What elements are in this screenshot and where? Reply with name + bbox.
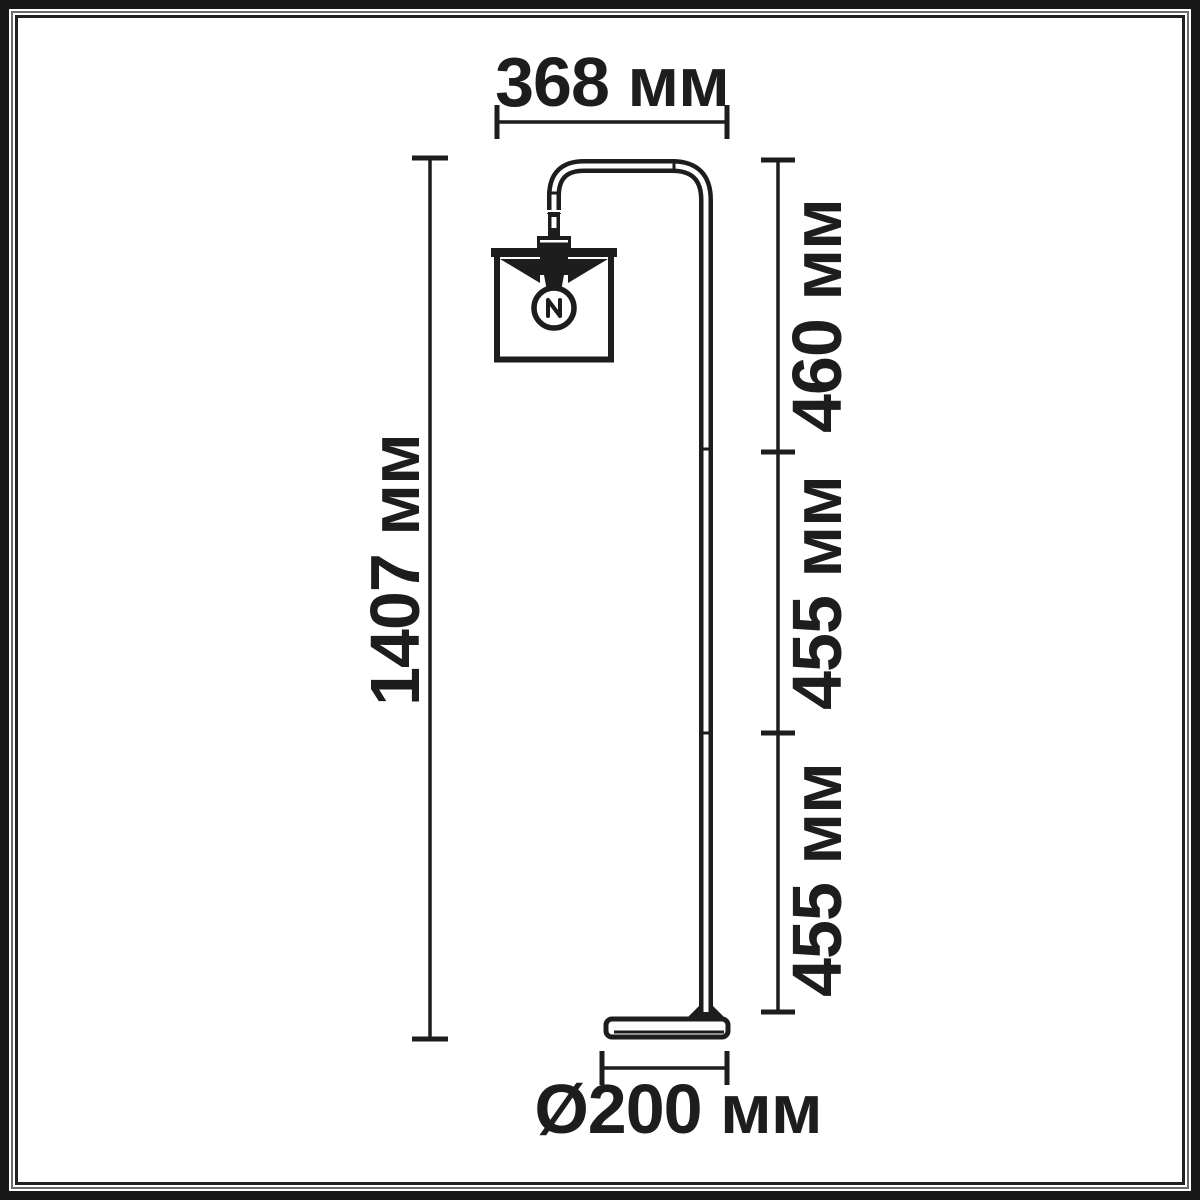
socket-cap-line bbox=[540, 240, 568, 243]
lamp-base bbox=[606, 1019, 728, 1037]
shade-holder-left-wing bbox=[500, 259, 540, 283]
floor-lamp-drawing bbox=[491, 159, 728, 1037]
label-lower-segment: 455 мм bbox=[778, 763, 856, 997]
label-arm-width: 368 мм bbox=[495, 43, 729, 121]
lamp-arm-and-pole bbox=[554, 166, 706, 1018]
shade-holder-right-wing bbox=[568, 259, 608, 283]
lamp-tube-highlight bbox=[554, 166, 706, 1012]
stem-slot bbox=[552, 217, 557, 228]
label-middle-segment: 455 мм bbox=[778, 476, 856, 710]
floor-lamp-dimension-diagram: 368 мм 1407 мм 460 мм 455 мм 455 мм Ø200… bbox=[0, 0, 1200, 1200]
bulb-socket bbox=[540, 257, 568, 275]
shade-top-rim bbox=[491, 248, 617, 257]
pole-flare-left bbox=[687, 1005, 700, 1018]
label-upper-segment: 460 мм bbox=[778, 199, 856, 433]
socket-cap bbox=[537, 236, 571, 250]
label-total-height: 1407 мм bbox=[356, 434, 434, 706]
pole-flare-right bbox=[712, 1005, 725, 1018]
label-base-diameter: Ø200 мм bbox=[534, 1070, 821, 1148]
